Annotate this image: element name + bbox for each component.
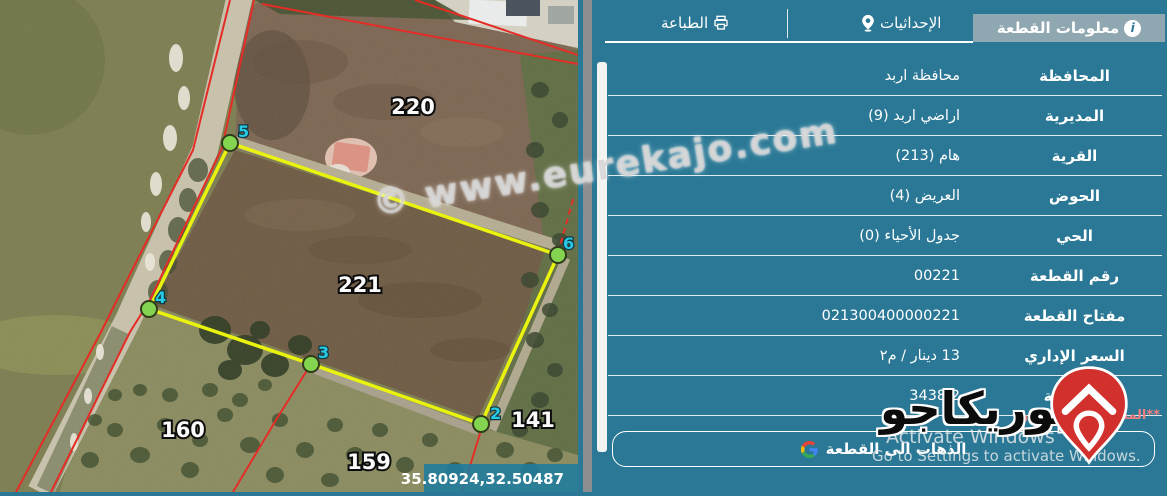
row-value: 13 دينار / م٢ <box>608 348 962 364</box>
scrollbar[interactable] <box>583 0 592 492</box>
scroll-thumb[interactable] <box>597 62 607 452</box>
table-row: المحافظةمحافظة اربد <box>608 56 1162 96</box>
info-panel: الطباعة الإحداثيات معلومات القطعة i المح… <box>578 0 1167 492</box>
row-value: 3438.2 <box>608 388 962 404</box>
row-label: المحافظة <box>962 67 1162 85</box>
table-row: الحوضالعريض (4) <box>608 176 1162 216</box>
go-to-parcel-label: الذهاب الى القطعة <box>826 440 967 458</box>
table-row: القريةهام (213) <box>608 136 1162 176</box>
table-row: المديريةاراضي اربد (9) <box>608 96 1162 136</box>
tab-coordinates-label: الإحداثيات <box>880 14 941 32</box>
location-pin-icon <box>861 14 875 32</box>
row-value: اراضي اربد (9) <box>608 108 962 124</box>
row-label: رقم القطعة <box>962 267 1162 285</box>
area-note: **المساحة التقريبية و <box>600 408 1160 423</box>
coordinates-badge: 35.80924,32.50487 <box>401 464 578 492</box>
table-row: السعر الإداري13 دينار / م٢ <box>608 336 1162 376</box>
row-value: هام (213) <box>608 148 962 164</box>
go-to-parcel-button[interactable]: الذهاب الى القطعة <box>612 431 1155 467</box>
svg-text:35.80924,32.50487: 35.80924,32.50487 <box>401 470 564 488</box>
table-row: مفتاح القطعة021300400000221 <box>608 296 1162 336</box>
printer-icon <box>713 15 729 31</box>
satellite-map[interactable]: 2 3 4 5 6 220 221 160 159 141 35.80924,3… <box>0 0 578 492</box>
row-value: محافظة اربد <box>608 68 962 84</box>
row-label: المديرية <box>962 107 1162 125</box>
tab-parcel-info[interactable]: معلومات القطعة i <box>973 14 1165 42</box>
row-value: جدول الأحياء (0) <box>608 228 962 244</box>
tab-underline <box>605 41 973 43</box>
table-row: رقم القطعة00221 <box>608 256 1162 296</box>
tab-parcel-info-label: معلومات القطعة <box>997 19 1119 37</box>
tab-bar: الطباعة الإحداثيات معلومات القطعة i <box>578 0 1167 42</box>
info-table: المحافظةمحافظة اربدالمديريةاراضي اربد (9… <box>608 56 1162 416</box>
google-icon <box>801 441 818 458</box>
table-row: الحيجدول الأحياء (0) <box>608 216 1162 256</box>
tab-divider <box>787 9 788 38</box>
row-value: العريض (4) <box>608 188 962 204</box>
row-label: السعر الإداري <box>962 347 1162 365</box>
info-icon: i <box>1124 20 1141 37</box>
row-label: الحي <box>962 227 1162 245</box>
tab-print[interactable]: الطباعة <box>661 9 729 37</box>
row-label: المساحة <box>962 387 1162 405</box>
row-label: مفتاح القطعة <box>962 307 1162 325</box>
row-value: 021300400000221 <box>608 308 962 324</box>
row-label: الحوض <box>962 187 1162 205</box>
tab-print-label: الطباعة <box>661 14 708 32</box>
row-value: 00221 <box>608 268 962 284</box>
row-label: القرية <box>962 147 1162 165</box>
tab-coordinates[interactable]: الإحداثيات <box>861 9 941 37</box>
